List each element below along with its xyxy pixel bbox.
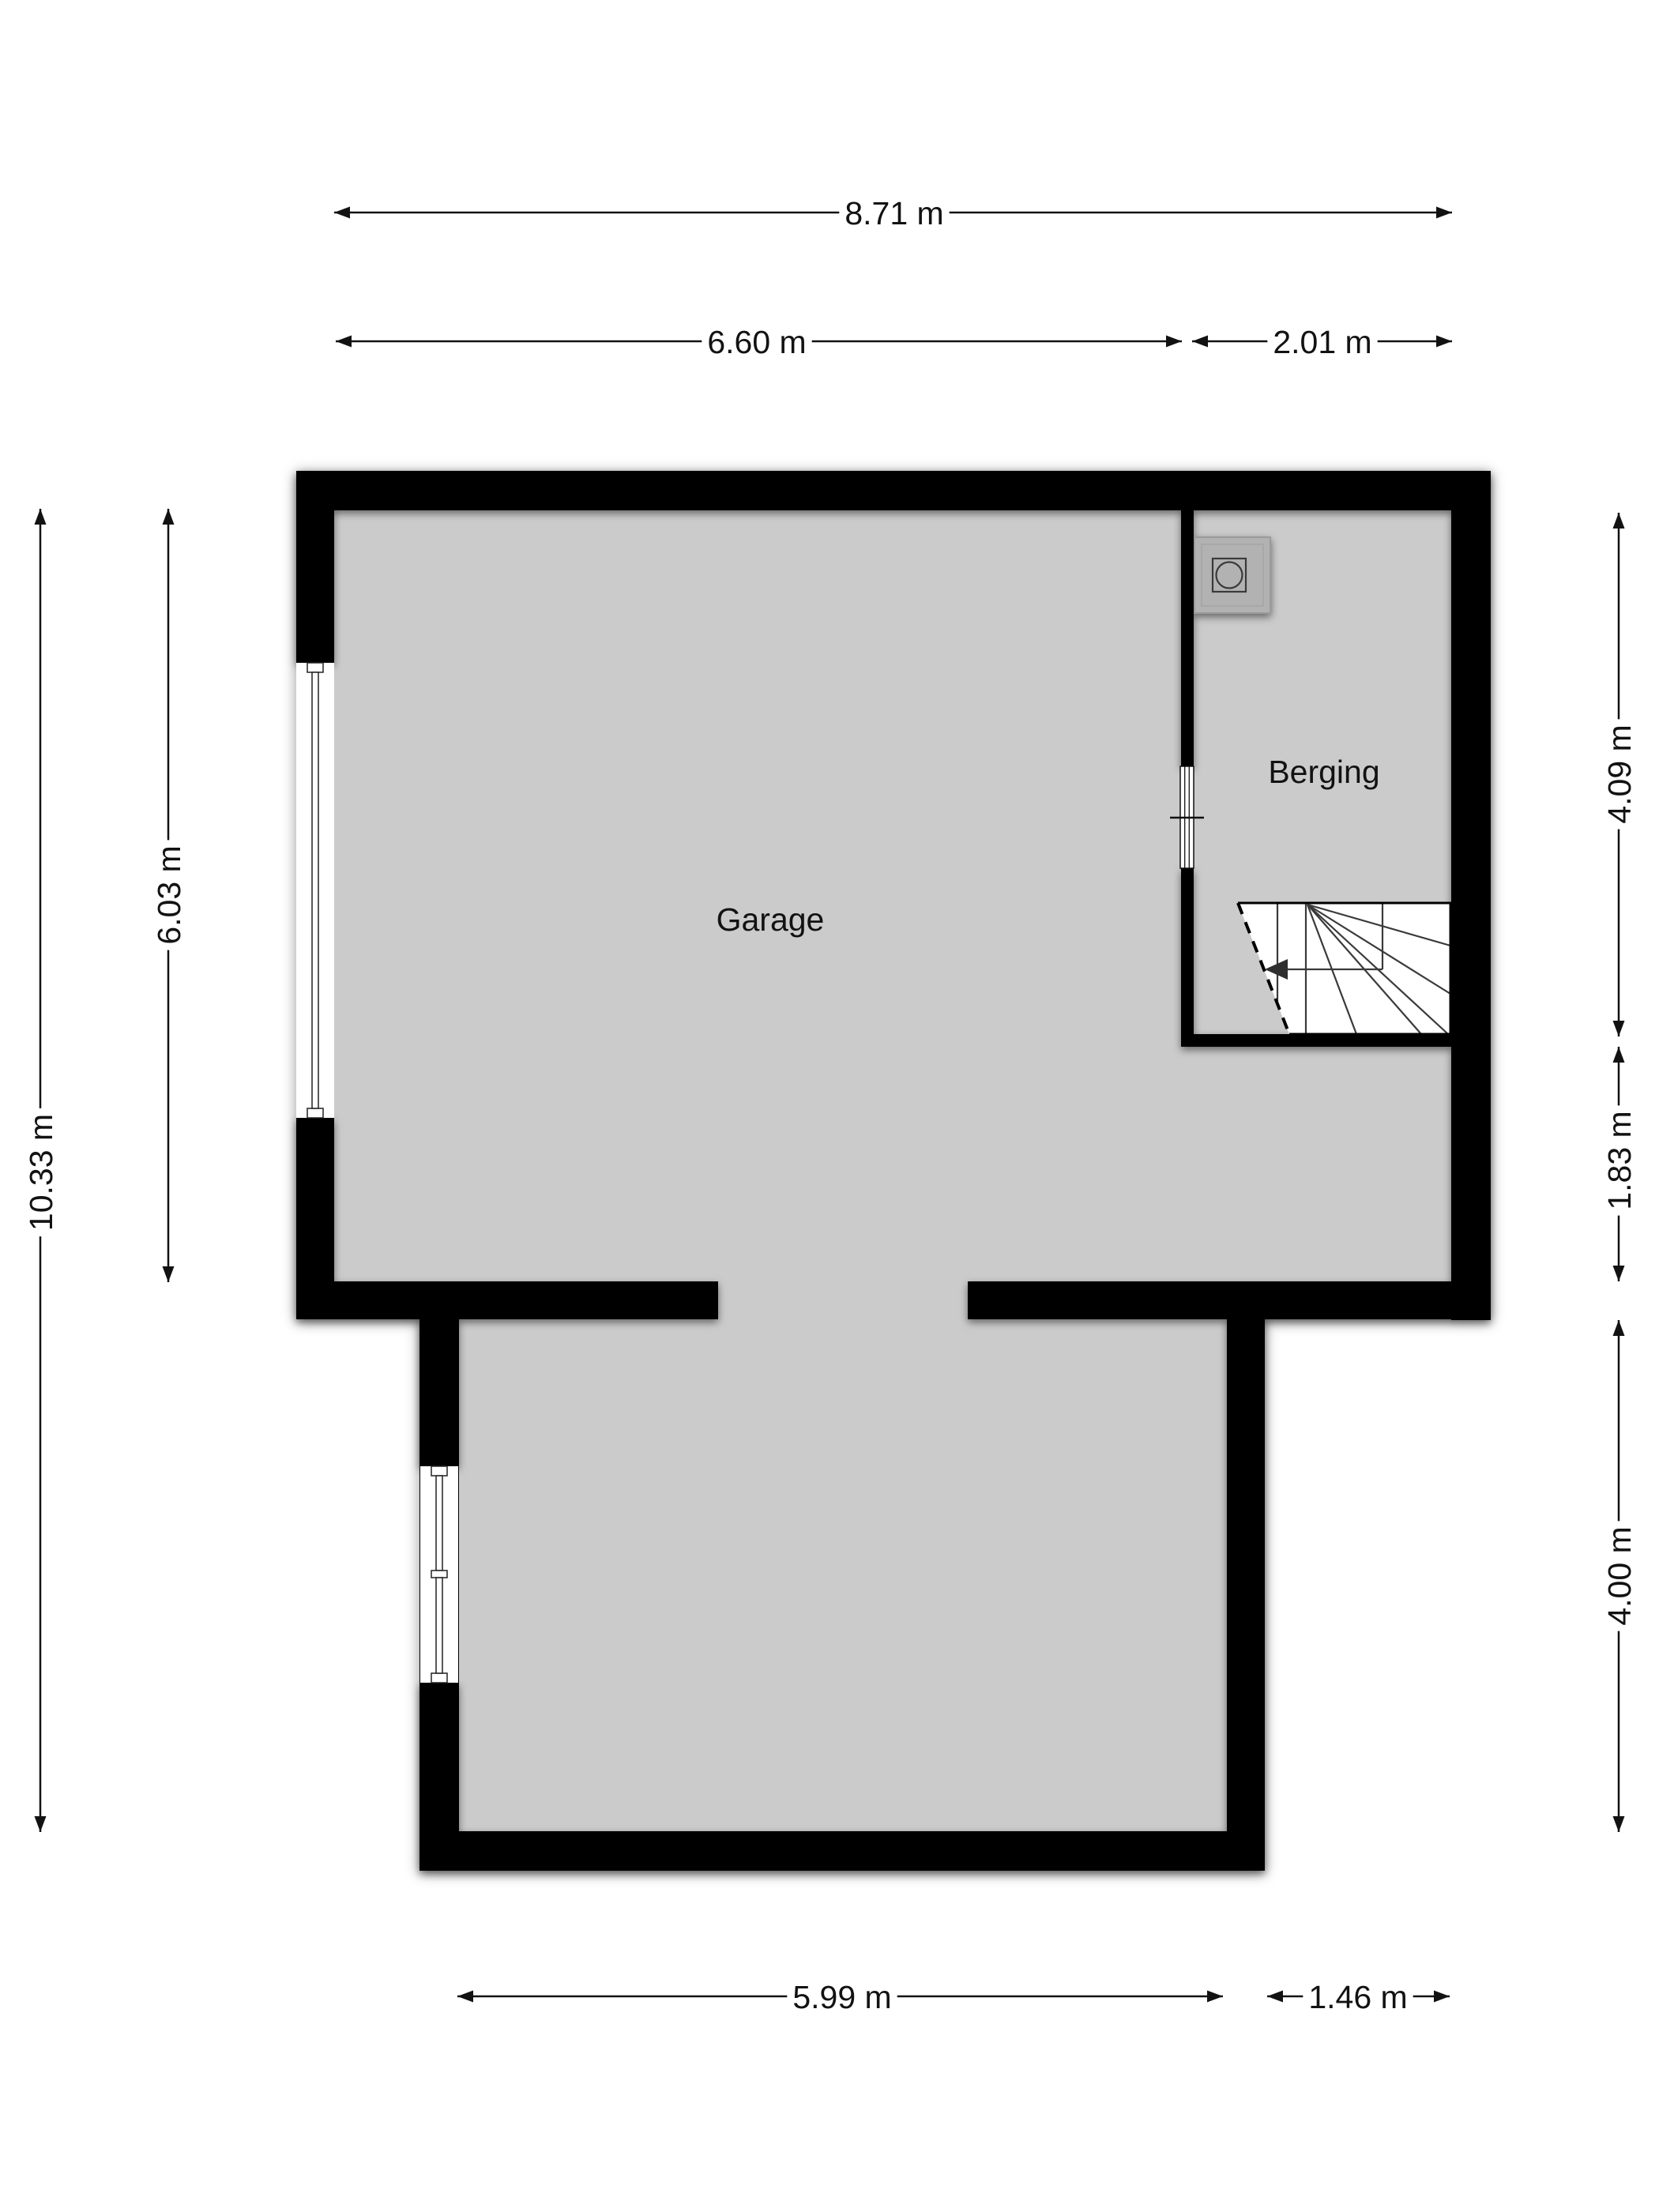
svg-text:6.60 m: 6.60 m bbox=[707, 324, 806, 360]
svg-text:4.00 m: 4.00 m bbox=[1601, 1526, 1638, 1625]
svg-text:8.71 m: 8.71 m bbox=[845, 195, 943, 231]
svg-text:6.03 m: 6.03 m bbox=[151, 845, 187, 944]
svg-text:1.46 m: 1.46 m bbox=[1308, 1979, 1407, 2015]
svg-text:10.33 m: 10.33 m bbox=[23, 1114, 59, 1231]
svg-text:2.01 m: 2.01 m bbox=[1273, 324, 1371, 360]
svg-text:Berging: Berging bbox=[1268, 754, 1379, 790]
svg-text:1.83 m: 1.83 m bbox=[1601, 1111, 1638, 1209]
svg-text:Garage: Garage bbox=[717, 901, 825, 938]
svg-text:5.99 m: 5.99 m bbox=[792, 1979, 891, 2015]
svg-text:4.09 m: 4.09 m bbox=[1601, 724, 1638, 823]
